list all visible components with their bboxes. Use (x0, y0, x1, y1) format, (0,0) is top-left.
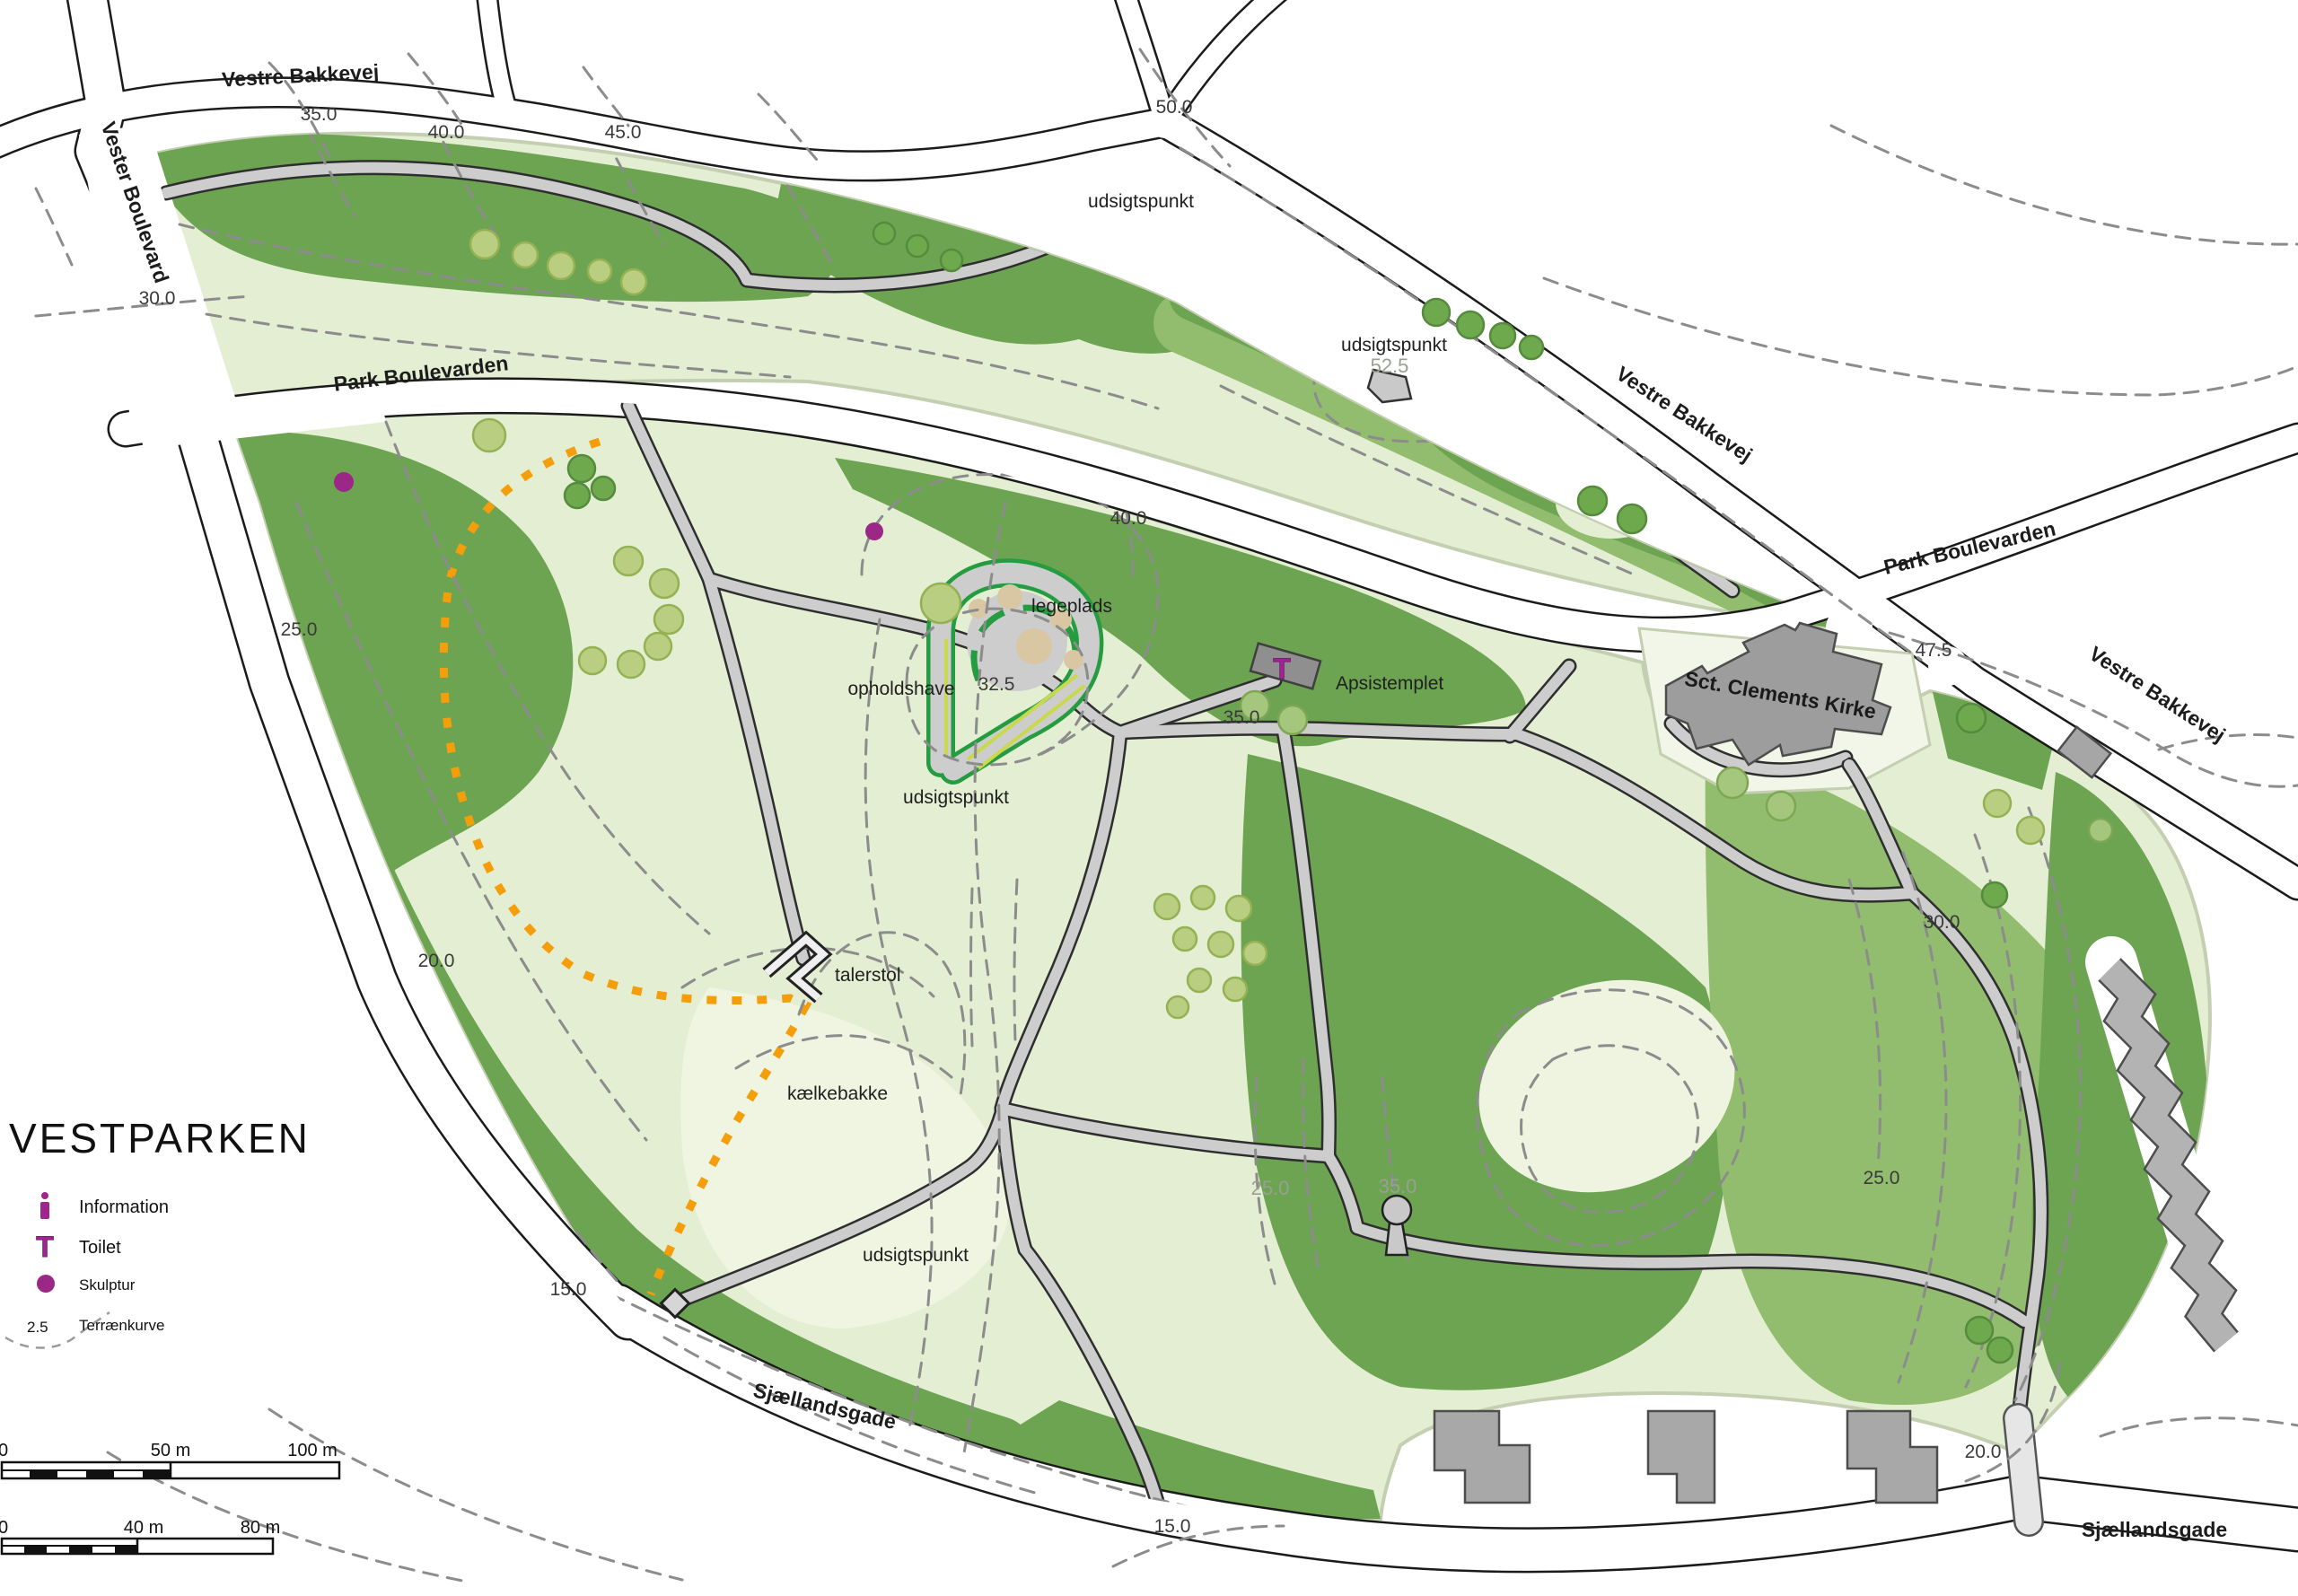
feature-label: legeplads (1031, 596, 1112, 617)
information-icon (41, 1192, 48, 1199)
contour-label-gray: 35.0 (1379, 1175, 1417, 1197)
vestparken-map: T Vestre Bakkevej Vester Boulevard Park … (0, 0, 2298, 1596)
scalebar-label-end: 80 m (241, 1518, 280, 1538)
contour-label: 45.0 (605, 122, 642, 143)
contour-label: 25.0 (1864, 1168, 1900, 1188)
feature-label: udsigtspunkt (1341, 335, 1447, 355)
legend-item-information: Information (40, 1192, 169, 1219)
contour-label: 40.0 (1110, 508, 1147, 529)
legend-item-sculpture: Skulptur (37, 1275, 136, 1293)
contour-label-gray: 52.5 (1371, 355, 1409, 377)
scalebar-primary: 0 50 m 100 m (0, 1441, 339, 1478)
contour-label: 25.0 (281, 619, 318, 640)
feature-label: talerstol (835, 965, 901, 986)
legend-item-label: Toilet (79, 1238, 121, 1258)
contour-label: 32.5 (978, 674, 1015, 695)
contour-label: 50.0 (1156, 97, 1193, 118)
feature-label: udsigtspunkt (903, 787, 1009, 808)
scalebar-label-mid: 50 m (151, 1441, 190, 1460)
legend: Information T Toilet Skulptur 2.5 Terræn… (5, 1192, 169, 1348)
legend-item-label: Skulptur (79, 1276, 136, 1293)
feature-label: udsigtspunkt (1088, 191, 1194, 212)
contour-label: 47.5 (1916, 640, 1952, 661)
sand-circle (969, 599, 988, 618)
scalebar-label-end: 100 m (287, 1441, 338, 1460)
sculpture-marker (865, 522, 883, 540)
house-building (1434, 1411, 1530, 1503)
southeast-entrance-walk-fill (2018, 1418, 2029, 1521)
scalebar-secondary: 0 40 m 80 m (0, 1518, 280, 1554)
contour-label: 15.0 (1154, 1516, 1191, 1537)
sand-circle (1016, 628, 1052, 664)
sculpture-marker (334, 472, 354, 492)
contour-label: 40.0 (428, 122, 465, 143)
scalebar-label-start: 0 (0, 1441, 8, 1460)
title-block: VESTPARKEN (9, 1115, 311, 1162)
sand-circle (997, 584, 1022, 609)
legend-item-contour: 2.5 Terrænkurve (5, 1312, 164, 1348)
legend-item-toilet: T Toilet (36, 1231, 121, 1263)
street-label: Sjællandsgade (2082, 1518, 2227, 1541)
contour-icon-value: 2.5 (27, 1319, 48, 1336)
scalebar-label-mid: 40 m (124, 1518, 163, 1538)
feature-label: Apsistemplet (1336, 673, 1443, 694)
contour-label: 30.0 (1924, 912, 1960, 933)
house-building (1648, 1411, 1715, 1503)
contour-label-gray: 25.0 (1251, 1177, 1290, 1199)
sculpture-icon (37, 1275, 55, 1293)
street-label: Vestre Bakkevej (2085, 642, 2230, 747)
legend-item-label: Information (79, 1197, 169, 1217)
contour-label: 30.0 (139, 288, 176, 309)
contour-label: 35.0 (301, 104, 338, 125)
feature-label: udsigtspunkt (863, 1245, 969, 1266)
park-areas (135, 133, 2210, 1520)
feature-label: kælkebakke (787, 1083, 888, 1104)
contour-label: 20.0 (418, 951, 455, 971)
scalebar-label-start: 0 (0, 1518, 8, 1538)
legend-item-label: Terrænkurve (79, 1317, 164, 1334)
information-icon (40, 1202, 49, 1219)
contour-label: 20.0 (1965, 1442, 2002, 1462)
toilet-icon: T (36, 1231, 54, 1263)
house-building (1847, 1411, 1937, 1503)
page-title: VESTPARKEN (9, 1115, 311, 1162)
toilet-marker-icon: T (1273, 653, 1291, 685)
feature-label: opholdshave (847, 679, 954, 699)
contour-label: 35.0 (1224, 707, 1260, 728)
contour-label: 15.0 (550, 1279, 587, 1300)
